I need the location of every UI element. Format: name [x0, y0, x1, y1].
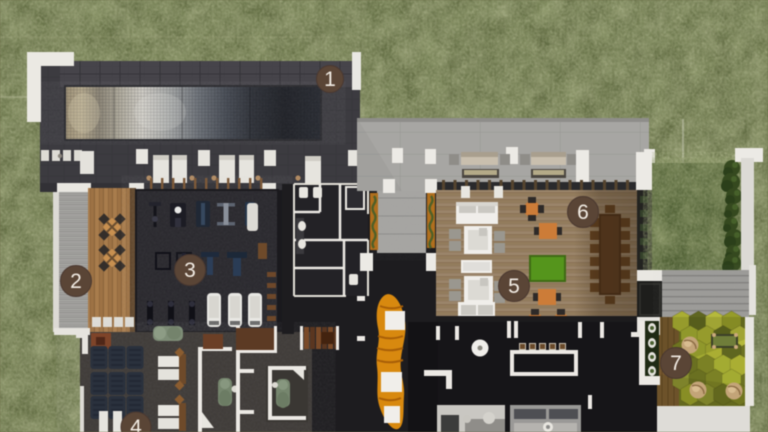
svg-text:3: 3 — [184, 259, 196, 282]
svg-text:5: 5 — [508, 275, 520, 298]
svg-text:2: 2 — [70, 270, 82, 293]
svg-text:6: 6 — [577, 201, 589, 224]
svg-text:7: 7 — [670, 352, 682, 375]
svg-text:4: 4 — [130, 416, 142, 432]
svg-text:1: 1 — [324, 68, 336, 91]
